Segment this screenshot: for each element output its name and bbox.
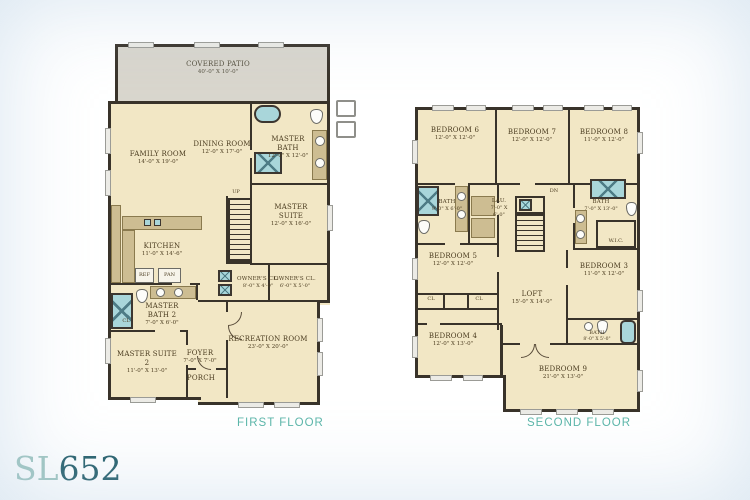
- window-marker: [637, 290, 643, 312]
- up-label: UP: [227, 189, 245, 195]
- room-label-family-room: FAMILY ROOM 14'-0" X 19'-0": [118, 150, 198, 166]
- wall-segment: [535, 183, 590, 185]
- sink-icon: [315, 158, 325, 168]
- plan-id-prefix: SL: [14, 449, 59, 488]
- room-dims: 11'-0" X 13'-0": [114, 368, 180, 375]
- kitchen-cabinet: [111, 205, 121, 283]
- window-marker: [520, 409, 542, 415]
- room-label-bath-small: BATH 8'-0" X 5'-0": [578, 330, 616, 342]
- room-name: BEDROOM 5: [418, 252, 488, 261]
- room-name: BEDROOM 3: [572, 262, 636, 271]
- wall-segment: [108, 101, 330, 104]
- wall-segment: [460, 243, 497, 245]
- room-label-bedroom-5: BEDROOM 5 12'-0" X 12'-0": [418, 252, 488, 268]
- window-marker: [317, 352, 323, 376]
- wall-segment: [566, 318, 568, 345]
- room-dims: 12'-0" X 13'-0": [418, 341, 488, 348]
- room-dims: 23'-0" X 20'-0": [222, 344, 314, 351]
- window-marker: [105, 128, 111, 154]
- wall-segment: [216, 368, 226, 370]
- room-dims: 12'-0" X 16'-0": [262, 221, 320, 228]
- stairs-up: [228, 198, 252, 262]
- room-label-master-suite-2: MASTER SUITE 2 11'-0" X 13'-0": [114, 350, 180, 375]
- window-marker: [556, 409, 578, 415]
- room-name: FAMILY ROOM: [118, 150, 198, 159]
- window-marker: [584, 105, 604, 111]
- bathtub-icon: [254, 105, 281, 123]
- wall-segment: [500, 325, 503, 378]
- first-floor-caption: FIRST FLOOR: [237, 417, 324, 429]
- wall-segment: [566, 285, 568, 320]
- room-dims: 7'-0" X 6'-0": [140, 320, 184, 327]
- wall-segment: [467, 293, 469, 308]
- dryer-icon: [471, 218, 495, 238]
- window-marker: [592, 409, 614, 415]
- window-marker: [432, 105, 454, 111]
- window-marker: [130, 397, 156, 403]
- room-dims: 12'-0" X 12'-0": [418, 261, 488, 268]
- bathtub-icon: [620, 320, 636, 344]
- sink-icon: [315, 136, 325, 146]
- room-name: BEDROOM 8: [572, 128, 636, 137]
- room-label-bedroom-3: BEDROOM 3 11'-0" X 12'-0": [572, 262, 636, 278]
- window-marker: [466, 105, 486, 111]
- wall-segment: [568, 107, 570, 183]
- plan-id-number: 652: [59, 449, 122, 488]
- ref-label: REF: [135, 272, 154, 278]
- room-name: MASTER SUITE: [262, 203, 320, 221]
- room-dims: 21'-0" X 13'-0": [518, 374, 608, 381]
- room-dims: 40'-0" X 10'-0": [178, 69, 258, 76]
- window-marker: [194, 42, 220, 48]
- wall-segment: [108, 283, 172, 285]
- room-label-laundry: LAU. 7'-0" X 6'-0": [484, 198, 514, 218]
- wall-segment: [470, 183, 520, 185]
- room-label-master-suite: MASTER SUITE 12'-0" X 16'-0": [262, 203, 320, 228]
- wall-segment: [573, 183, 575, 208]
- room-label-bath-right: BATH 7'-0" X 13'-0": [578, 199, 624, 213]
- cl-label: CL: [422, 296, 440, 302]
- room-dims: 12'-0" X 12'-0": [266, 153, 310, 160]
- wall-segment: [327, 101, 330, 303]
- room-name: LAU.: [484, 198, 514, 205]
- room-label-porch: PORCH: [184, 374, 218, 383]
- wall-segment: [250, 183, 330, 185]
- wall-segment: [415, 293, 497, 295]
- equipment-pad: [336, 100, 356, 117]
- wall-segment: [566, 250, 568, 268]
- sink-icon: [576, 214, 585, 223]
- chute-icon: [519, 199, 532, 211]
- room-dims: 11'-0" X 14'-6": [136, 251, 188, 258]
- dn-label: DN: [546, 188, 562, 194]
- wall-segment: [190, 283, 200, 285]
- wall-segment: [226, 300, 228, 312]
- room-name: BEDROOM 6: [420, 126, 490, 135]
- room-label-bedroom-4: BEDROOM 4 12'-0" X 13'-0": [418, 332, 488, 348]
- window-marker: [258, 42, 284, 48]
- pan-label: PAN: [158, 272, 181, 278]
- wall-segment: [415, 323, 427, 325]
- window-marker: [637, 132, 643, 154]
- window-marker: [430, 375, 452, 381]
- wall-segment: [250, 263, 330, 265]
- room-name: RECREATION ROOM: [222, 335, 314, 344]
- wall-segment: [415, 183, 455, 185]
- wall-segment: [497, 215, 499, 257]
- room-label-bath-left: BATH 9'-0" X 6'-0": [430, 199, 464, 213]
- cooktop-icon: [154, 219, 161, 226]
- kitchen-counter: [122, 216, 202, 230]
- room-dims: 8'-0" X 5'-0": [578, 337, 616, 343]
- wall-segment: [440, 323, 502, 325]
- wall-segment: [443, 293, 445, 308]
- window-marker: [412, 140, 418, 164]
- wall-segment: [186, 330, 188, 345]
- room-label-owners-closet-2: OWNER'S CL. 6'-0" X 5'-0": [272, 276, 318, 290]
- room-name: MASTER BATH 2: [140, 302, 184, 320]
- wall-segment: [468, 183, 470, 245]
- wall-segment: [573, 248, 640, 250]
- window-marker: [128, 42, 154, 48]
- room-label-dining-room: DINING ROOM 12'-0" X 17'-0": [190, 140, 254, 156]
- room-dims: 12'-0" X 12'-0": [498, 137, 566, 144]
- room-dims: 12'-0" X 17'-0": [190, 149, 254, 156]
- room-dims: 7'-0" X 7'-0": [182, 358, 218, 365]
- room-dims: 15'-0" X 14'-0": [500, 299, 564, 306]
- sink-icon: [174, 288, 183, 297]
- window-marker: [105, 338, 111, 364]
- floor-plan-page: UP REF PAN CL: [0, 0, 750, 500]
- sink-icon: [156, 288, 165, 297]
- room-label-bedroom-6: BEDROOM 6 12'-0" X 12'-0": [420, 126, 490, 142]
- kitchen-counter: [122, 230, 135, 283]
- room-label-master-bath-2: MASTER BATH 2 7'-0" X 6'-0": [140, 302, 184, 327]
- room-name: OWNER'S CL.: [272, 276, 318, 283]
- equipment-pad: [336, 121, 356, 138]
- wall-segment: [415, 243, 445, 245]
- walk-in-closet: W.I.C.: [596, 220, 636, 248]
- room-label-kitchen: KITCHEN 11'-0" X 14'-6": [136, 242, 188, 258]
- wall-segment: [503, 343, 520, 345]
- room-label-covered-patio: COVERED PATIO 40'-0" X 10'-0": [178, 60, 258, 76]
- cooktop-icon: [144, 219, 151, 226]
- wall-segment: [415, 375, 503, 378]
- shower-icon: [590, 179, 626, 199]
- room-name: BEDROOM 4: [418, 332, 488, 341]
- window-marker: [274, 402, 300, 408]
- room-dims: 11'-0" X 12'-0": [572, 137, 636, 144]
- window-marker: [327, 205, 333, 231]
- wall-segment: [196, 285, 198, 300]
- window-marker: [105, 170, 111, 196]
- room-label-bedroom-8: BEDROOM 8 11'-0" X 12'-0": [572, 128, 636, 144]
- window-marker: [317, 318, 323, 342]
- room-name: BATH: [578, 199, 624, 206]
- room-label-loft: LOFT 15'-0" X 14'-0": [500, 290, 564, 306]
- window-marker: [512, 105, 534, 111]
- wall-segment: [108, 330, 155, 332]
- cl-label: CL: [114, 318, 138, 324]
- room-name: PORCH: [184, 374, 218, 383]
- wic-label: W.I.C.: [598, 238, 634, 244]
- room-dims: 11'-0" X 12'-0": [572, 271, 636, 278]
- room-name: DINING ROOM: [190, 140, 254, 149]
- room-dims: 12'-0" X 12'-0": [420, 135, 490, 142]
- window-marker: [463, 375, 483, 381]
- wall-segment: [226, 262, 252, 264]
- second-floor-caption: SECOND FLOOR: [527, 417, 631, 429]
- room-name: KITCHEN: [136, 242, 188, 251]
- room-label-recreation-room: RECREATION ROOM 23'-0" X 20'-0": [222, 335, 314, 351]
- wall-segment: [503, 375, 506, 412]
- sink-icon: [576, 230, 585, 239]
- room-name: COVERED PATIO: [178, 60, 258, 69]
- room-name: BEDROOM 9: [518, 365, 608, 374]
- cl-label: CL: [470, 296, 488, 302]
- wall-segment: [495, 107, 497, 183]
- window-marker: [543, 105, 563, 111]
- room-name: BEDROOM 7: [498, 128, 566, 137]
- room-dims: 14'-0" X 19'-0": [118, 159, 198, 166]
- room-label-master-bath: MASTER BATH 12'-0" X 12'-0": [266, 135, 310, 160]
- room-label-bedroom-9: BEDROOM 9 21'-0" X 13'-0": [518, 365, 608, 381]
- room-dims: 7'-0" X 13'-0": [578, 206, 624, 213]
- room-name: LOFT: [500, 290, 564, 299]
- room-label-bedroom-7: BEDROOM 7 12'-0" X 12'-0": [498, 128, 566, 144]
- room-label-foyer: FOYER 7'-0" X 7'-0": [182, 349, 218, 365]
- plan-id: SL652: [14, 449, 122, 488]
- room-name: MASTER BATH: [266, 135, 310, 153]
- window-marker: [238, 402, 264, 408]
- window-marker: [637, 370, 643, 392]
- wall-segment: [415, 308, 497, 310]
- stairs-down: [515, 214, 545, 252]
- room-dims: 6'-0" X 5'-0": [272, 283, 318, 290]
- room-dims: 9'-0" X 6'-0": [430, 206, 464, 213]
- room-name: BATH: [430, 199, 464, 206]
- room-dims: 7'-0" X 6'-0": [484, 205, 514, 218]
- wall-segment: [186, 368, 196, 370]
- wall-segment: [198, 300, 320, 302]
- wall-segment: [497, 272, 499, 330]
- window-marker: [612, 105, 632, 111]
- room-name: FOYER: [182, 349, 218, 358]
- room-name: MASTER SUITE 2: [114, 350, 180, 368]
